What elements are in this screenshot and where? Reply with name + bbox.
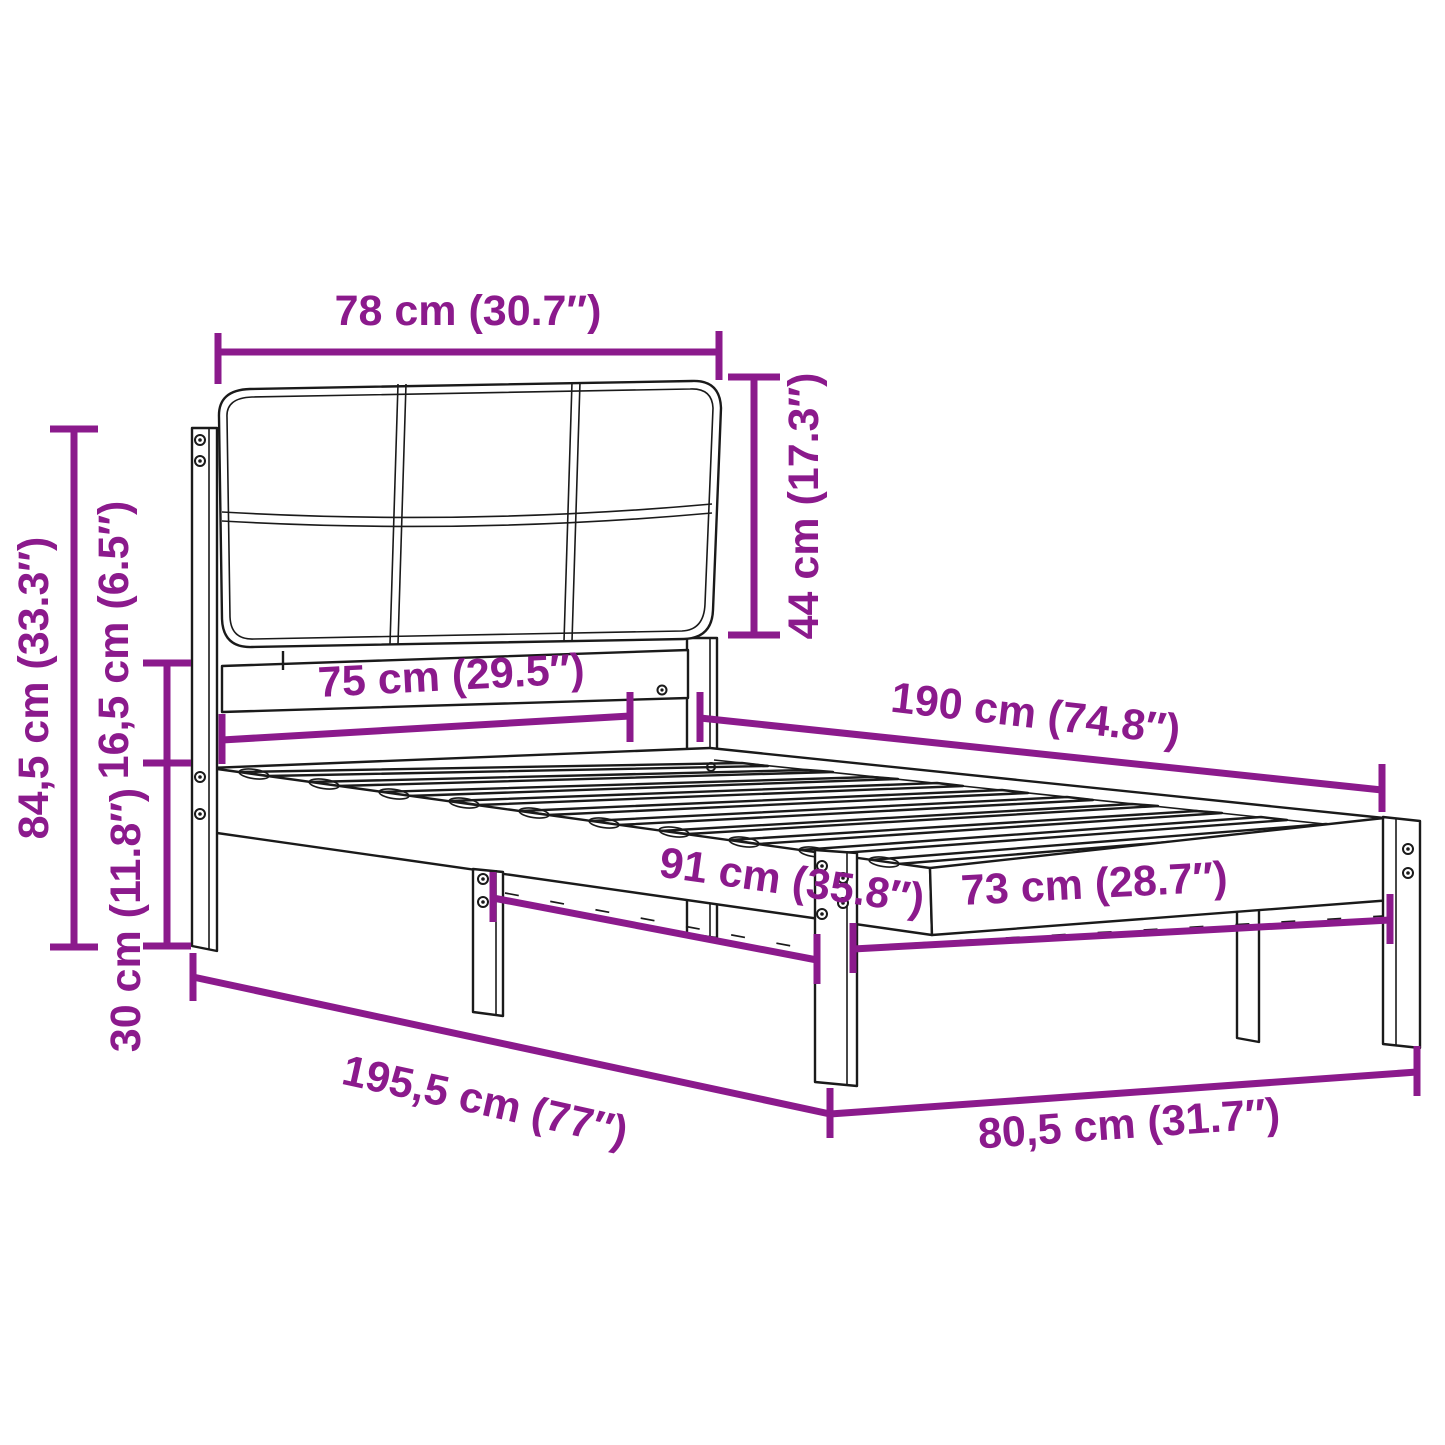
dim-leg-height: 30 cm (11.8″)	[102, 763, 191, 1052]
dim-total-width: 80,5 cm (31.7″)	[830, 1046, 1417, 1159]
dim-label: 84,5 cm (33.3″)	[10, 537, 58, 840]
dim-headboard-width: 78 cm (30.7″)	[218, 287, 719, 384]
dim-rail-height: 16,5 cm (6.5″)	[90, 501, 191, 780]
diagram-canvas: 78 cm (30.7″) 44 cm (17.3″) 84,5 cm (33.…	[0, 0, 1445, 1445]
dim-total-height: 84,5 cm (33.3″)	[10, 429, 98, 947]
dim-label: 30 cm (11.8″)	[102, 788, 150, 1052]
dim-total-length: 195,5 cm (77″)	[193, 953, 830, 1156]
dim-headboard-height: 44 cm (17.3″)	[728, 373, 828, 640]
leg-middle-near-head	[473, 869, 503, 1016]
dim-label: 78 cm (30.7″)	[335, 287, 602, 335]
dim-label: 44 cm (17.3″)	[780, 373, 828, 640]
headboard-cushion	[219, 381, 721, 647]
headboard-post-left	[192, 428, 217, 951]
bed-dimension-diagram: 78 cm (30.7″) 44 cm (17.3″) 84,5 cm (33.…	[0, 0, 1445, 1445]
dim-label: 16,5 cm (6.5″)	[90, 501, 138, 780]
